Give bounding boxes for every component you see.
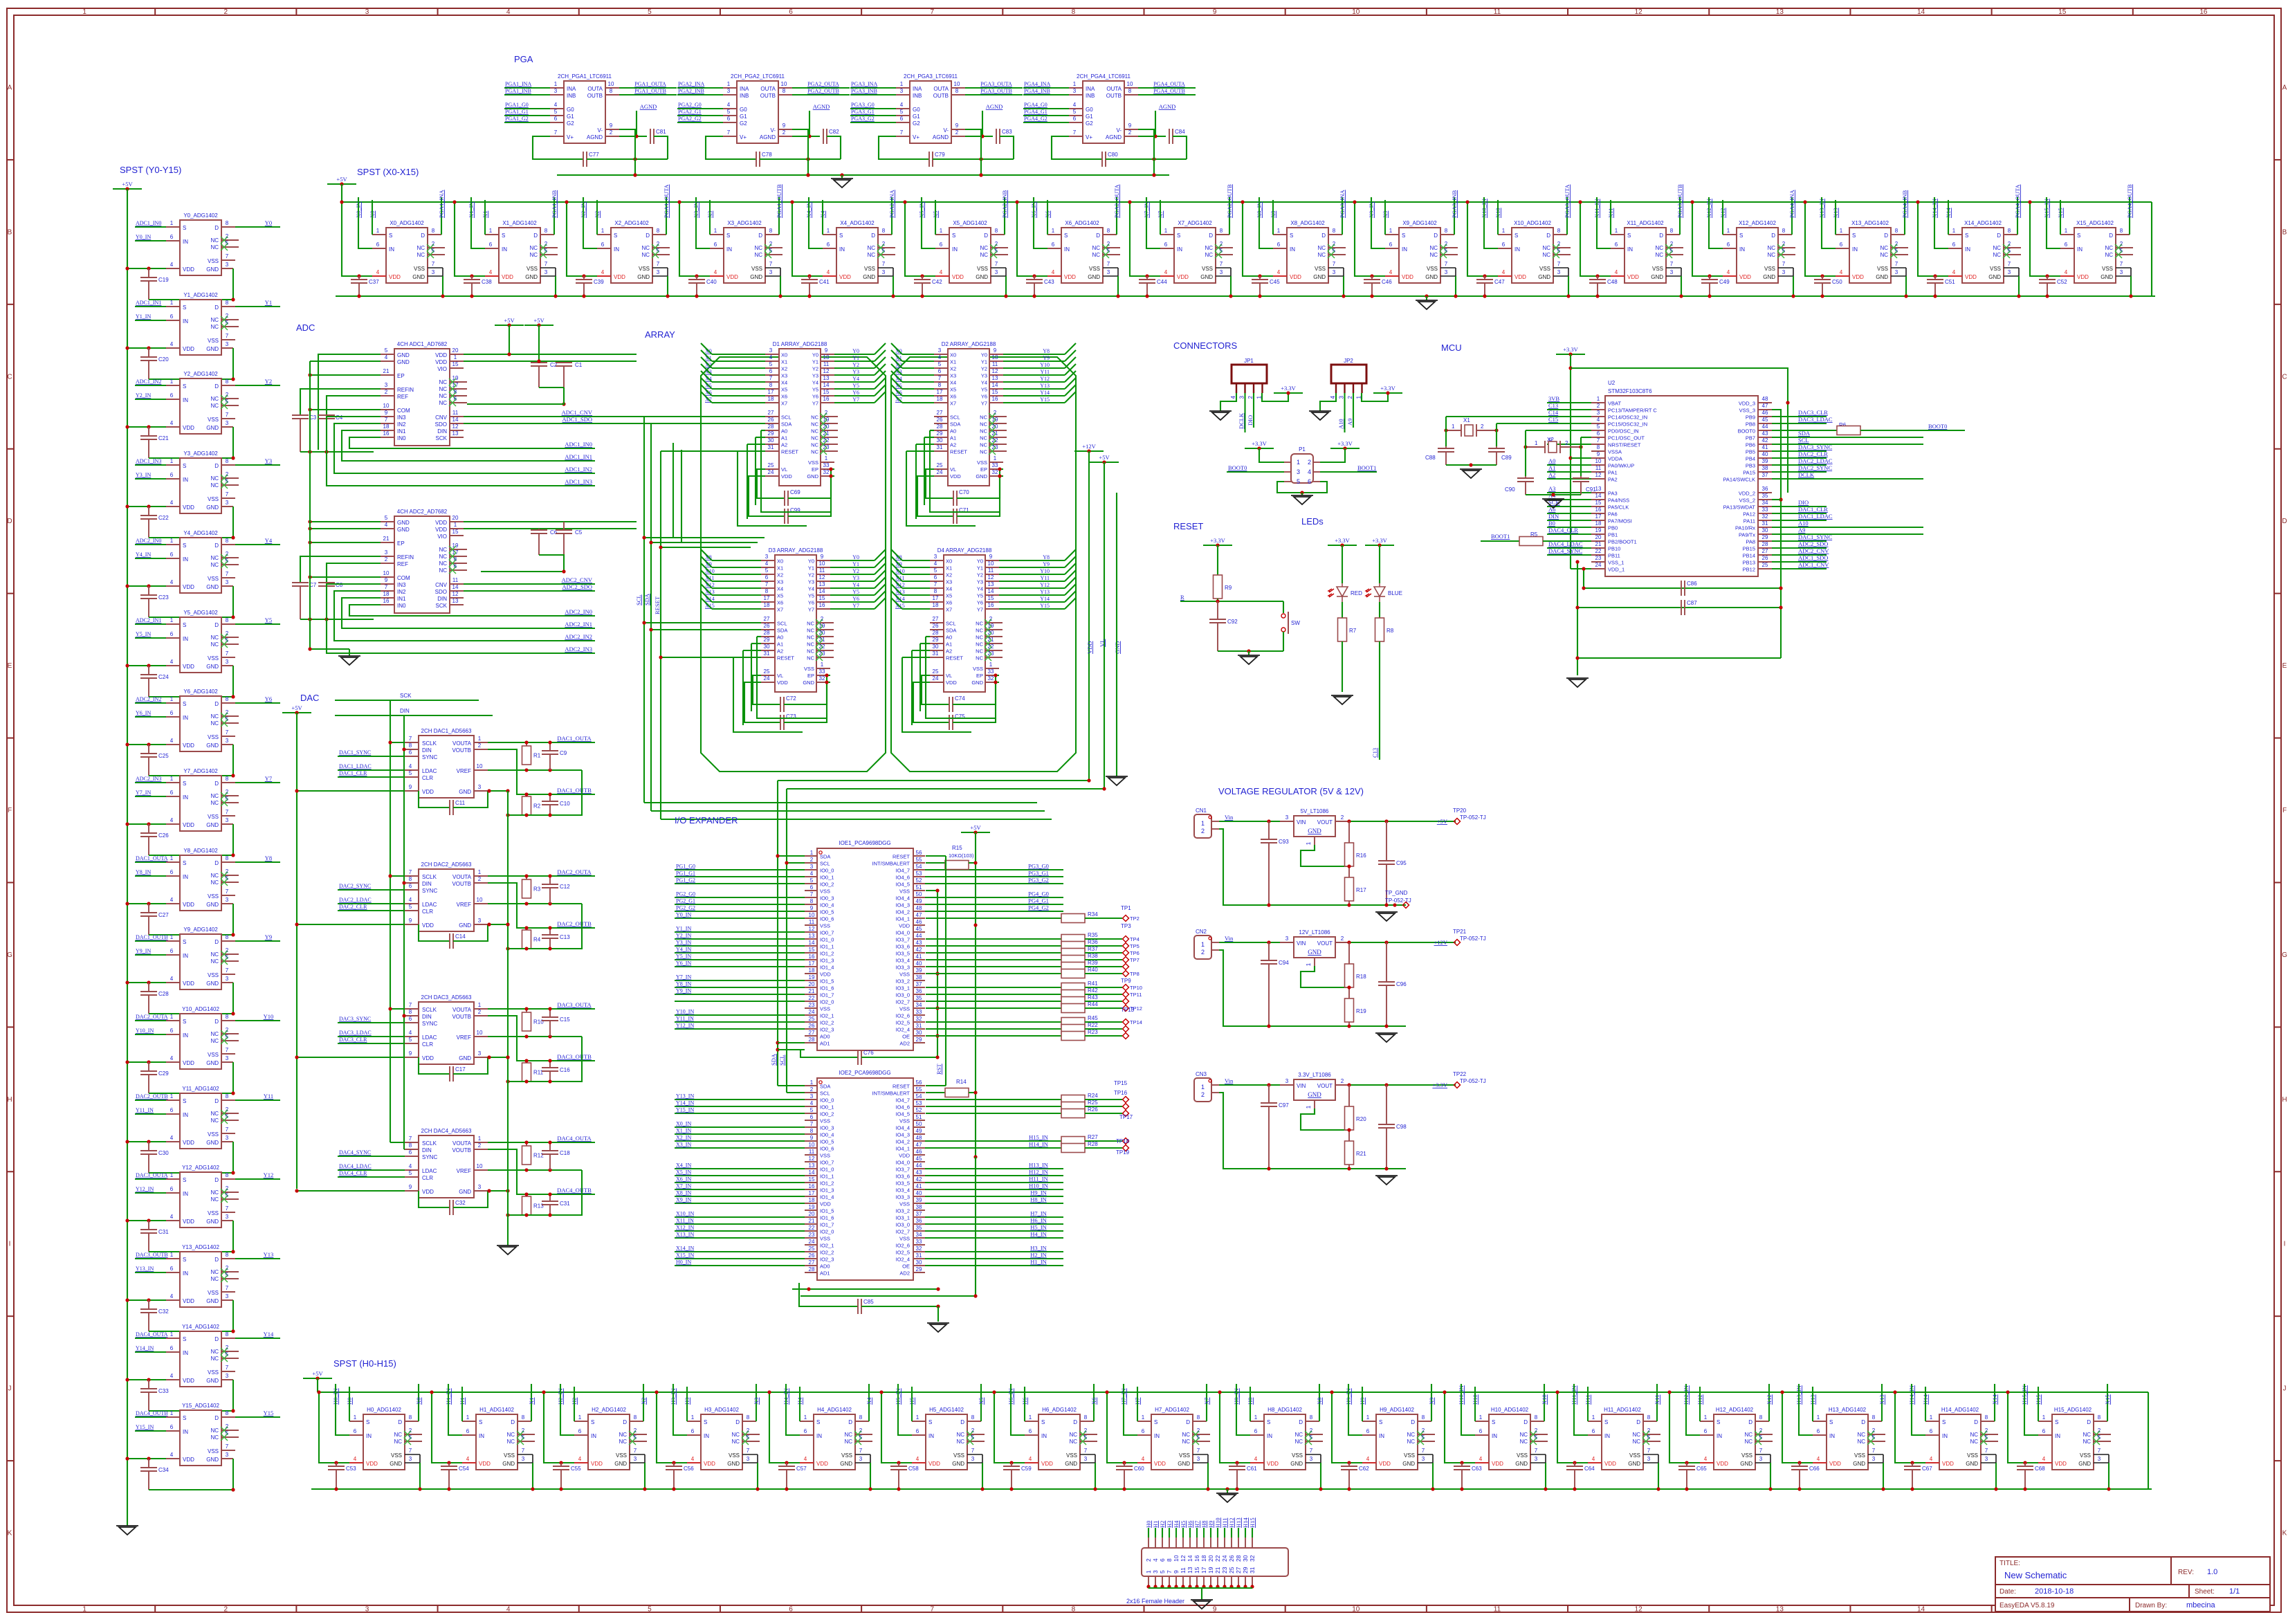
svg-text:NC: NC <box>210 237 219 244</box>
svg-text:C29: C29 <box>158 1070 169 1077</box>
svg-text:H7_ADG1402: H7_ADG1402 <box>1155 1407 1189 1413</box>
svg-text:Y5: Y5 <box>812 387 818 393</box>
svg-text:VSS: VSS <box>977 266 988 272</box>
svg-text:14: 14 <box>1917 8 1925 16</box>
svg-text:7: 7 <box>409 1002 412 1008</box>
svg-text:VSS: VSS <box>208 814 219 820</box>
svg-text:IO1_2: IO1_2 <box>820 1180 834 1187</box>
svg-text:6: 6 <box>827 241 830 248</box>
svg-text:PGA4_INB: PGA4_INB <box>1024 88 1050 94</box>
svg-text:NC: NC <box>754 252 762 258</box>
svg-text:S: S <box>183 1177 186 1183</box>
svg-text:DAC: DAC <box>300 693 319 703</box>
svg-text:2: 2 <box>224 8 228 16</box>
svg-text:S: S <box>704 1419 707 1425</box>
svg-text:7: 7 <box>226 1443 229 1450</box>
svg-text:27: 27 <box>809 1030 815 1036</box>
svg-text:IN: IN <box>1379 1433 1384 1439</box>
svg-text:CLR: CLR <box>422 775 433 781</box>
svg-text:8: 8 <box>765 588 769 594</box>
svg-text:AD2: AD2 <box>899 1041 910 1047</box>
svg-text:8: 8 <box>226 1331 229 1338</box>
svg-text:PG2_G1: PG2_G1 <box>676 898 695 904</box>
svg-text:2: 2 <box>478 1009 482 1015</box>
svg-text:NC: NC <box>210 1276 219 1282</box>
svg-text:D: D <box>214 860 219 866</box>
svg-text:R45: R45 <box>1088 1015 1098 1021</box>
svg-text:C10: C10 <box>560 801 570 807</box>
svg-text:DAC4_OUTA: DAC4_OUTA <box>136 1331 168 1338</box>
svg-text:R1: R1 <box>533 753 541 759</box>
svg-text:7: 7 <box>226 1285 229 1291</box>
svg-text:14: 14 <box>809 940 815 946</box>
svg-text:Y13_IN: Y13_IN <box>676 1093 694 1100</box>
svg-text:1: 1 <box>478 1002 482 1008</box>
svg-text:PGA2_G2: PGA2_G2 <box>678 116 702 122</box>
svg-text:ADC1_IN0: ADC1_IN0 <box>565 441 592 448</box>
svg-text:6: 6 <box>1592 1428 1595 1434</box>
svg-text:4: 4 <box>578 1456 582 1462</box>
svg-text:6: 6 <box>769 368 773 374</box>
svg-text:C32: C32 <box>455 1200 466 1206</box>
svg-text:Y2: Y2 <box>265 378 272 385</box>
svg-text:C69: C69 <box>790 489 800 495</box>
svg-text:OUTB: OUTB <box>760 93 776 99</box>
svg-text:TP10: TP10 <box>1130 985 1142 991</box>
svg-text:VDD: VDD <box>1514 274 1526 280</box>
svg-text:A0: A0 <box>950 428 956 435</box>
svg-text:PC14/OSC32_IN: PC14/OSC32_IN <box>1608 414 1647 421</box>
svg-text:VDD: VDD <box>183 1219 194 1225</box>
svg-text:C89: C89 <box>1501 455 1512 461</box>
svg-text:IO4_0: IO4_0 <box>896 1160 910 1166</box>
svg-text:16: 16 <box>383 598 390 604</box>
svg-text:2: 2 <box>478 1142 482 1149</box>
svg-text:IO1_0: IO1_0 <box>820 937 834 943</box>
svg-text:48: 48 <box>916 905 922 911</box>
svg-text:AD1: AD1 <box>820 1041 830 1047</box>
svg-text:2: 2 <box>1201 949 1205 956</box>
svg-text:OUTB: OUTB <box>1106 93 1122 99</box>
svg-text:8: 8 <box>769 228 773 234</box>
svg-text:IO3_7: IO3_7 <box>896 937 910 943</box>
svg-text:GND: GND <box>2078 1461 2091 1467</box>
svg-text:4: 4 <box>1366 1456 1370 1462</box>
svg-text:DAC3_LDAC: DAC3_LDAC <box>339 1030 372 1036</box>
svg-text:GND: GND <box>1651 274 1663 280</box>
svg-text:30: 30 <box>916 1259 922 1266</box>
svg-text:8: 8 <box>1872 1414 1876 1421</box>
svg-text:47: 47 <box>916 912 922 918</box>
svg-text:D4 ARRAY_ADG2188: D4 ARRAY_ADG2188 <box>937 547 992 554</box>
svg-text:IO3_2: IO3_2 <box>896 1208 910 1214</box>
svg-text:A1: A1 <box>777 641 783 648</box>
svg-text:4: 4 <box>1164 269 1168 275</box>
svg-text:6: 6 <box>354 1428 357 1434</box>
svg-text:X9: X9 <box>1428 1398 1435 1405</box>
svg-text:Y3: Y3 <box>852 575 859 581</box>
svg-text:IO0_2: IO0_2 <box>820 1111 834 1117</box>
svg-text:TP20: TP20 <box>1453 808 1467 814</box>
svg-text:36: 36 <box>916 1218 922 1224</box>
svg-text:VIO: VIO <box>437 366 447 372</box>
svg-text:PA4/NSS: PA4/NSS <box>1608 498 1629 504</box>
svg-text:18: 18 <box>383 591 390 597</box>
svg-text:10: 10 <box>1352 8 1360 16</box>
svg-text:3: 3 <box>226 976 229 982</box>
svg-text:29: 29 <box>916 1266 922 1272</box>
svg-text:C: C <box>7 373 12 381</box>
svg-text:SCK: SCK <box>436 603 448 609</box>
svg-text:X1: X1 <box>950 359 956 365</box>
svg-text:4: 4 <box>376 269 380 275</box>
svg-text:R9: R9 <box>1225 585 1232 591</box>
svg-text:PGA1_OUTB: PGA1_OUTB <box>634 88 666 94</box>
svg-text:NC: NC <box>210 879 219 886</box>
svg-text:VDD: VDD <box>435 520 447 526</box>
svg-text:EP: EP <box>807 673 814 679</box>
svg-text:Y7_IN: Y7_IN <box>676 974 691 980</box>
svg-text:IN3: IN3 <box>397 414 406 421</box>
svg-text:NC: NC <box>439 393 447 399</box>
svg-text:21: 21 <box>1595 541 1602 547</box>
svg-text:7: 7 <box>1084 1448 1088 1454</box>
svg-text:3: 3 <box>226 897 229 903</box>
svg-text:IO3_6: IO3_6 <box>896 944 910 950</box>
svg-text:6: 6 <box>170 1424 174 1430</box>
svg-text:NC: NC <box>394 1432 402 1438</box>
svg-text:VDD: VDD <box>1739 274 1751 280</box>
svg-text:D: D <box>214 463 219 469</box>
svg-text:4: 4 <box>170 659 174 665</box>
svg-text:18: 18 <box>933 602 939 608</box>
svg-text:X6_IN: X6_IN <box>676 1176 691 1183</box>
svg-text:6: 6 <box>1277 241 1281 248</box>
svg-text:BOOT0: BOOT0 <box>1928 423 1947 430</box>
svg-text:2: 2 <box>1308 459 1311 466</box>
svg-text:A: A <box>8 84 12 91</box>
svg-text:7: 7 <box>1535 1448 1538 1454</box>
svg-text:NC: NC <box>619 1432 627 1438</box>
svg-text:INT/SMBALERT: INT/SMBALERT <box>872 861 910 867</box>
svg-text:17: 17 <box>809 960 815 967</box>
svg-text:30: 30 <box>768 437 774 444</box>
svg-text:D: D <box>214 622 219 628</box>
svg-text:X1: X1 <box>777 565 783 572</box>
svg-text:4: 4 <box>466 1456 470 1462</box>
svg-text:C24: C24 <box>158 674 169 680</box>
svg-text:IN: IN <box>614 246 619 253</box>
svg-text:VSS: VSS <box>208 655 219 662</box>
svg-text:PGA3_G1: PGA3_G1 <box>851 109 875 115</box>
svg-text:GND: GND <box>1740 1461 1752 1467</box>
svg-text:4: 4 <box>170 341 174 347</box>
svg-text:VDD: VDD <box>839 274 851 280</box>
svg-text:3: 3 <box>657 269 660 275</box>
svg-text:BOOT1: BOOT1 <box>1491 533 1510 540</box>
svg-text:5: 5 <box>900 109 904 115</box>
svg-text:12: 12 <box>1180 1555 1187 1562</box>
svg-text:C43: C43 <box>1044 279 1054 285</box>
svg-text:1: 1 <box>170 696 174 702</box>
svg-text:NC: NC <box>210 403 219 409</box>
svg-text:8: 8 <box>971 1414 975 1421</box>
svg-text:21: 21 <box>809 1218 815 1224</box>
svg-text:VREF: VREF <box>457 902 471 908</box>
svg-text:1: 1 <box>810 850 814 856</box>
svg-text:Y5: Y5 <box>852 383 859 389</box>
svg-text:DAC2_SYNC: DAC2_SYNC <box>1798 464 1832 471</box>
svg-text:B: B <box>2282 228 2287 236</box>
svg-text:X2: X2 <box>946 572 952 578</box>
svg-text:IN: IN <box>1064 246 1070 253</box>
svg-text:R23: R23 <box>1088 1029 1098 1035</box>
svg-text:S: S <box>183 701 186 707</box>
svg-text:NC: NC <box>980 252 988 258</box>
svg-text:8: 8 <box>1197 1414 1200 1421</box>
svg-text:INT/SMBALERT: INT/SMBALERT <box>872 1091 910 1097</box>
svg-text:Y12_IN: Y12_IN <box>136 1186 154 1192</box>
svg-text:27: 27 <box>764 616 770 622</box>
svg-text:1: 1 <box>1592 1414 1595 1421</box>
svg-text:GND: GND <box>1988 274 2001 280</box>
svg-text:VDD: VDD <box>704 1461 715 1467</box>
svg-text:VDD: VDD <box>1177 274 1189 280</box>
svg-text:NC: NC <box>210 635 219 641</box>
svg-text:X4: X4 <box>777 586 783 592</box>
svg-text:1: 1 <box>916 1414 919 1421</box>
svg-text:PC1/OSC_OUT: PC1/OSC_OUT <box>1608 435 1645 441</box>
svg-text:Y2: Y2 <box>812 366 818 372</box>
svg-text:VL: VL <box>781 466 787 473</box>
svg-text:2: 2 <box>1481 423 1484 430</box>
svg-text:Y2: Y2 <box>852 362 859 368</box>
svg-text:4: 4 <box>934 560 937 567</box>
svg-text:Y3: Y3 <box>981 373 987 379</box>
svg-text:DAC3_OUTB: DAC3_OUTB <box>557 1053 592 1060</box>
svg-text:D: D <box>646 232 650 239</box>
svg-text:28: 28 <box>809 1037 815 1043</box>
svg-text:VDD: VDD <box>389 274 401 280</box>
svg-text:5: 5 <box>765 567 769 574</box>
svg-text:1: 1 <box>1145 1570 1152 1573</box>
svg-text:7: 7 <box>934 581 937 587</box>
svg-text:IO0_1: IO0_1 <box>820 875 834 881</box>
svg-text:PB5: PB5 <box>1746 449 1755 455</box>
svg-text:IO2_4: IO2_4 <box>896 1027 910 1033</box>
svg-text:VDD: VDD <box>1379 1461 1391 1467</box>
svg-text:B0: B0 <box>1548 520 1555 527</box>
svg-text:Y5_ADG1402: Y5_ADG1402 <box>183 610 218 616</box>
svg-text:VSS: VSS <box>899 1118 910 1124</box>
svg-text:1: 1 <box>900 81 904 87</box>
svg-text:9: 9 <box>994 347 997 354</box>
svg-text:SPST (X0-X15): SPST (X0-X15) <box>357 167 419 177</box>
svg-text:VDD: VDD <box>435 527 447 533</box>
svg-text:2: 2 <box>1145 1558 1152 1562</box>
svg-text:7: 7 <box>226 1205 229 1212</box>
svg-text:VDD: VDD <box>183 504 194 511</box>
svg-text:10: 10 <box>1127 81 1133 87</box>
svg-text:38: 38 <box>916 974 922 980</box>
svg-text:8: 8 <box>1670 228 1674 234</box>
svg-text:BOOT0: BOOT0 <box>1738 428 1755 435</box>
svg-text:Y1: Y1 <box>852 355 859 361</box>
svg-text:6: 6 <box>940 241 943 248</box>
svg-text:H13_ADG1402: H13_ADG1402 <box>1829 1407 1867 1413</box>
svg-text:VDD: VDD <box>183 1060 194 1066</box>
svg-text:Y6: Y6 <box>977 600 983 606</box>
svg-text:9: 9 <box>821 554 824 560</box>
svg-text:X4: X4 <box>866 1397 872 1405</box>
svg-text:R28: R28 <box>1088 1141 1098 1147</box>
svg-text:6: 6 <box>714 241 717 248</box>
svg-text:D: D <box>848 1419 852 1425</box>
svg-text:X3_IN: X3_IN <box>676 1142 691 1148</box>
svg-text:D: D <box>1861 1419 1865 1425</box>
svg-text:IO1_2: IO1_2 <box>820 951 834 957</box>
svg-text:NC: NC <box>210 951 219 958</box>
svg-text:V-: V- <box>770 127 776 134</box>
svg-text:X8_ADG1402: X8_ADG1402 <box>1290 220 1325 226</box>
svg-text:1: 1 <box>1254 1414 1258 1421</box>
svg-text:ADC2_IN3: ADC2_IN3 <box>565 646 592 653</box>
svg-text:+5V: +5V <box>336 176 347 183</box>
svg-text:R39: R39 <box>1088 960 1098 966</box>
svg-text:Y14: Y14 <box>1040 596 1050 602</box>
svg-text:X5: X5 <box>950 387 956 393</box>
svg-text:C28: C28 <box>158 991 169 997</box>
svg-text:Y1: Y1 <box>981 359 987 365</box>
svg-text:22: 22 <box>809 995 815 1001</box>
svg-text:GND: GND <box>502 1461 515 1467</box>
svg-text:4: 4 <box>409 1163 412 1169</box>
svg-text:4: 4 <box>170 500 174 506</box>
svg-text:RESET: RESET <box>654 596 661 614</box>
svg-text:VDD: VDD <box>1267 1461 1279 1467</box>
svg-text:X3: X3 <box>753 1398 760 1405</box>
svg-text:6: 6 <box>938 368 942 374</box>
svg-text:AD2: AD2 <box>899 1270 910 1277</box>
svg-text:NC: NC <box>210 1117 219 1124</box>
svg-text:GND: GND <box>412 274 425 280</box>
svg-text:25: 25 <box>809 1016 815 1022</box>
svg-text:D2 ARRAY_ADG2188: D2 ARRAY_ADG2188 <box>942 341 996 347</box>
svg-text:3: 3 <box>478 784 482 790</box>
svg-text:7: 7 <box>1422 1448 1425 1454</box>
svg-text:C53: C53 <box>346 1466 356 1472</box>
svg-text:IN: IN <box>1942 1433 1948 1439</box>
svg-text:S: S <box>183 1019 186 1025</box>
svg-text:IO0_2: IO0_2 <box>820 882 834 888</box>
svg-text:31: 31 <box>916 1023 922 1029</box>
svg-text:C93: C93 <box>1279 839 1289 845</box>
svg-text:Y12: Y12 <box>1040 582 1050 588</box>
svg-text:REF: REF <box>397 561 408 567</box>
svg-text:PA10/Rx: PA10/Rx <box>1735 525 1755 531</box>
svg-text:S: S <box>591 1419 594 1425</box>
svg-text:4: 4 <box>170 738 174 744</box>
svg-text:VSS: VSS <box>208 417 219 423</box>
svg-text:VDD: VDD <box>183 1457 194 1463</box>
svg-text:7: 7 <box>385 584 388 590</box>
svg-text:VBAT: VBAT <box>1608 401 1621 407</box>
svg-text:6: 6 <box>170 472 174 478</box>
svg-text:IO1_7: IO1_7 <box>820 1222 834 1228</box>
svg-text:DAC4_CLR: DAC4_CLR <box>339 1170 367 1176</box>
svg-text:IO3_1: IO3_1 <box>896 1215 910 1221</box>
svg-text:17: 17 <box>933 595 939 601</box>
svg-text:VSS: VSS <box>1315 266 1326 272</box>
svg-text:6: 6 <box>170 1186 174 1192</box>
svg-text:D: D <box>623 1419 627 1425</box>
svg-text:X5: X5 <box>777 593 783 599</box>
svg-text:4: 4 <box>1330 395 1336 399</box>
svg-text:REFIN: REFIN <box>397 554 414 560</box>
svg-text:X3: X3 <box>781 373 787 379</box>
svg-text:3: 3 <box>478 1050 482 1057</box>
svg-text:16: 16 <box>809 954 815 960</box>
svg-text:C25: C25 <box>158 753 169 759</box>
svg-text:3: 3 <box>2008 269 2011 275</box>
svg-text:NC: NC <box>1182 1432 1190 1438</box>
svg-text:VSS: VSS <box>1854 1452 1865 1459</box>
svg-text:31: 31 <box>937 444 943 450</box>
svg-text:Y4_IN: Y4_IN <box>136 551 151 558</box>
svg-text:8: 8 <box>1445 228 1448 234</box>
svg-text:7: 7 <box>226 888 229 895</box>
svg-text:3: 3 <box>385 549 388 556</box>
svg-text:R18: R18 <box>1356 974 1366 980</box>
svg-text:4: 4 <box>170 1293 174 1299</box>
svg-text:NC: NC <box>619 1439 627 1445</box>
svg-text:D: D <box>214 1336 219 1342</box>
svg-text:19: 19 <box>992 417 998 423</box>
svg-text:IO4_5: IO4_5 <box>896 882 910 888</box>
svg-text:VDD: VDD <box>591 1461 603 1467</box>
svg-text:JP2: JP2 <box>1344 358 1353 364</box>
svg-text:31: 31 <box>764 650 770 657</box>
svg-text:2: 2 <box>1247 395 1254 399</box>
svg-text:DAC1_LDAC: DAC1_LDAC <box>339 763 372 769</box>
svg-text:7: 7 <box>544 261 548 267</box>
svg-text:D: D <box>1884 232 1888 239</box>
svg-text:VSS: VSS <box>973 666 983 672</box>
svg-text:33: 33 <box>988 668 994 675</box>
svg-text:IO1_5: IO1_5 <box>820 1208 834 1214</box>
svg-text:IO1_6: IO1_6 <box>820 1215 834 1221</box>
svg-text:NC: NC <box>210 1269 219 1275</box>
svg-text:IN: IN <box>1514 246 1520 253</box>
svg-text:Y6: Y6 <box>265 695 272 702</box>
svg-text:14: 14 <box>809 1169 815 1176</box>
svg-text:IO0_7: IO0_7 <box>820 930 834 936</box>
svg-text:R19: R19 <box>1356 1008 1366 1014</box>
svg-text:C86: C86 <box>1687 581 1697 587</box>
svg-text:NC: NC <box>807 648 814 655</box>
svg-text:VSS_2: VSS_2 <box>1739 498 1755 504</box>
svg-text:VDD: VDD <box>1717 1461 1728 1467</box>
svg-text:IN: IN <box>183 794 188 801</box>
svg-text:SCL: SCL <box>777 621 787 627</box>
svg-text:9: 9 <box>610 122 613 129</box>
svg-text:43: 43 <box>916 940 922 946</box>
svg-text:47: 47 <box>1762 403 1768 409</box>
svg-text:S: S <box>183 860 186 866</box>
svg-text:DIN: DIN <box>422 1147 432 1153</box>
svg-text:4: 4 <box>170 817 174 823</box>
svg-text:IN: IN <box>1290 246 1295 253</box>
